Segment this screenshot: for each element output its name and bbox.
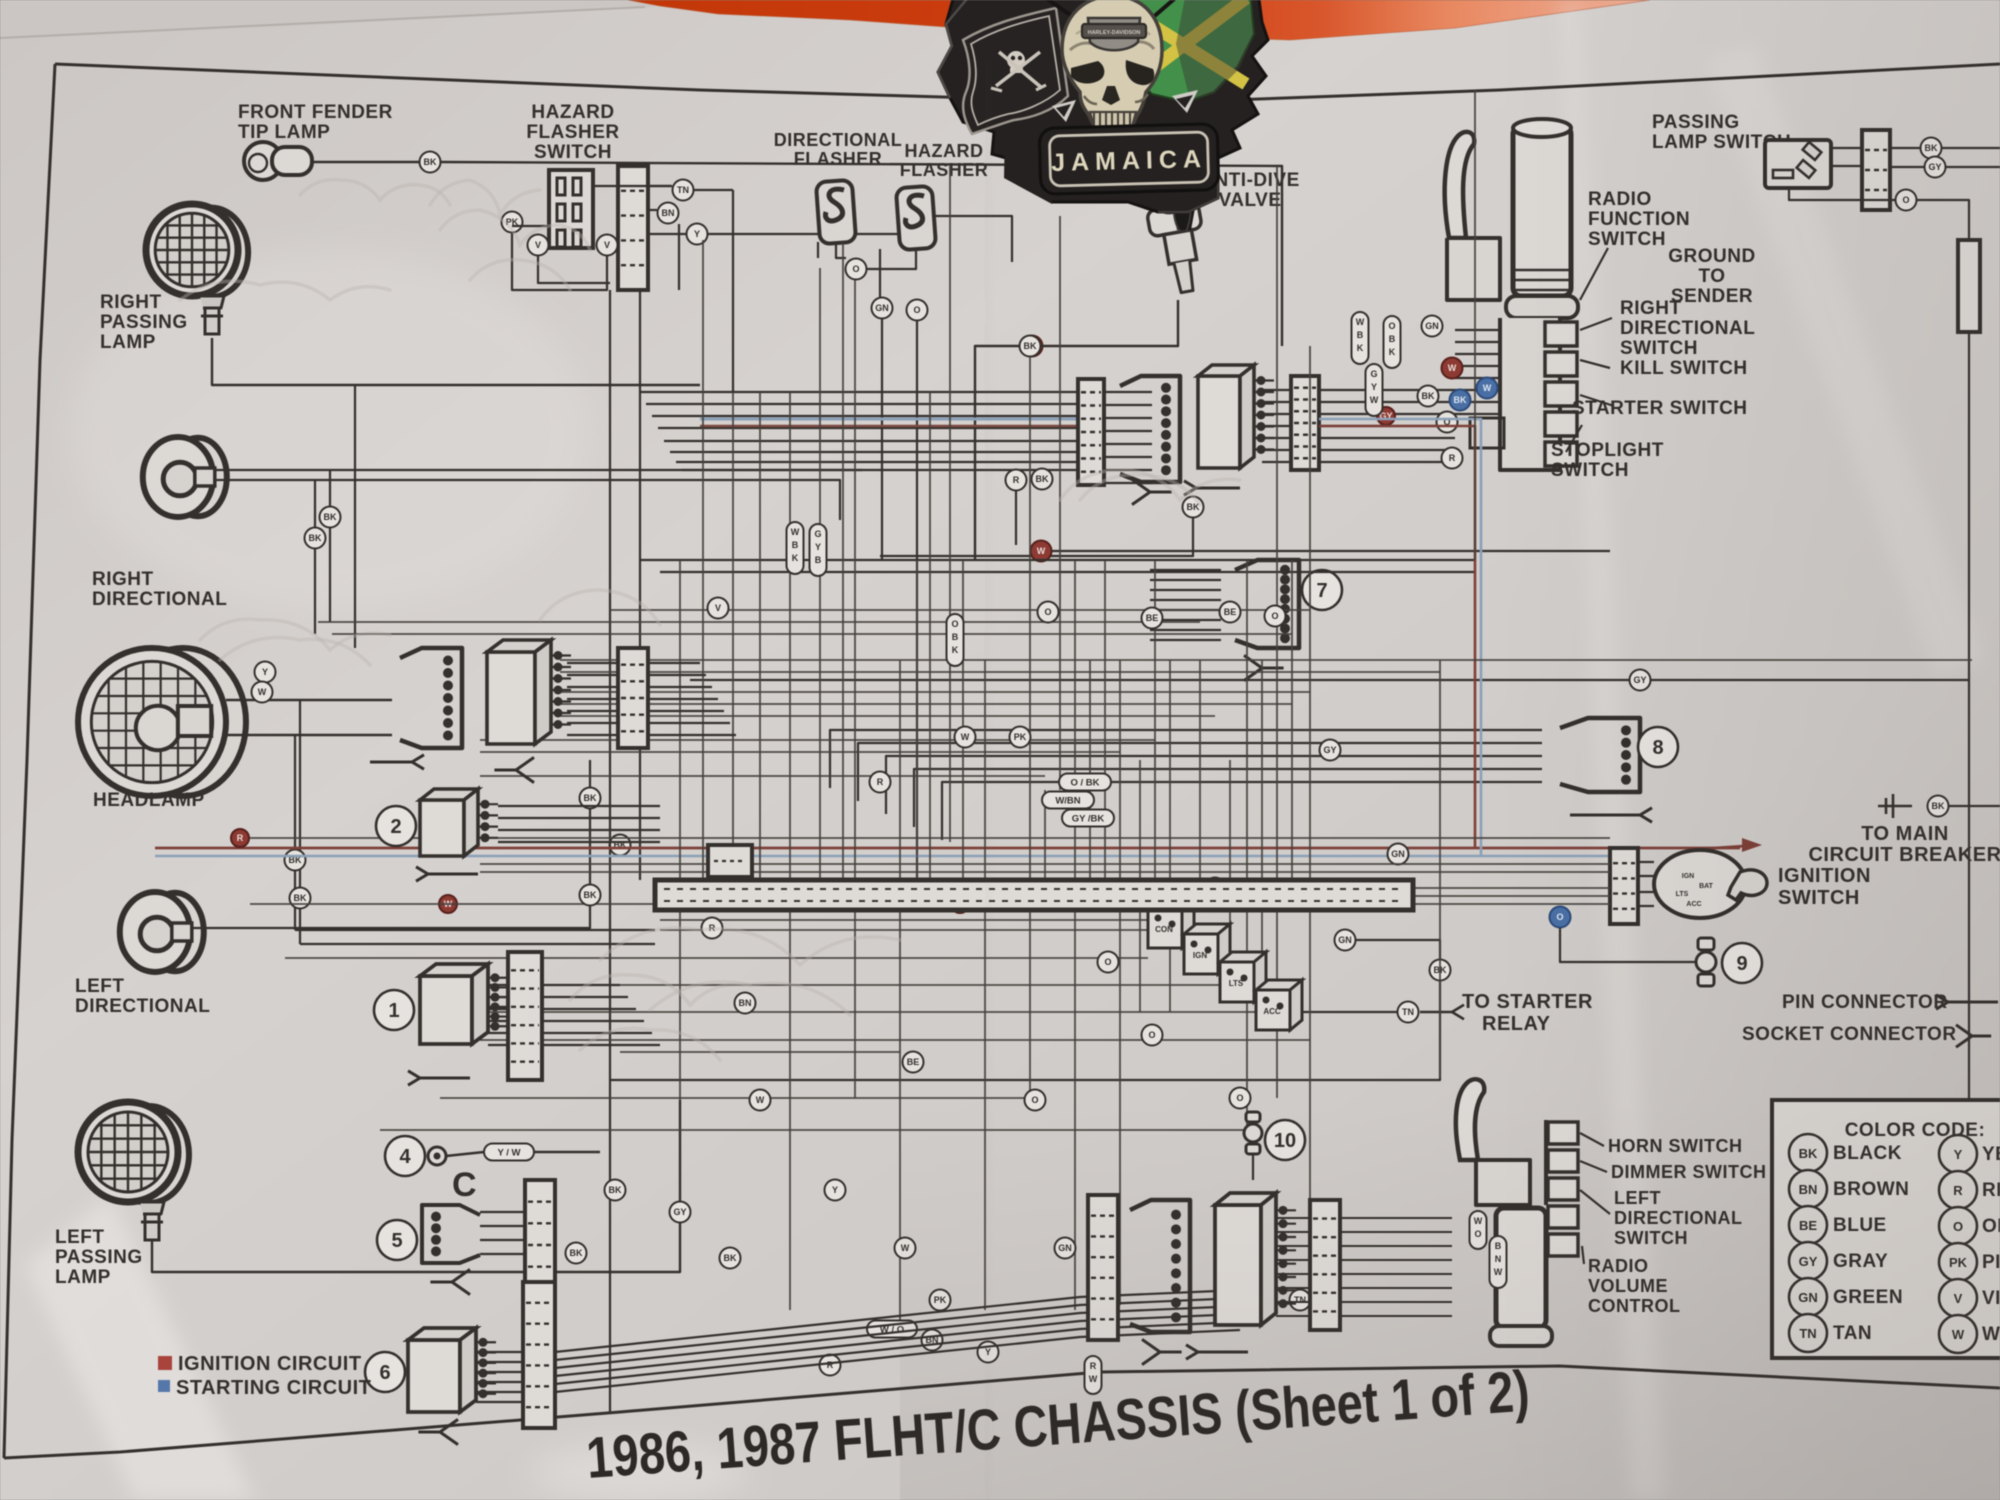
svg-text:TIP LAMP: TIP LAMP [238, 122, 330, 143]
svg-text:GY /BK: GY /BK [1072, 814, 1105, 825]
svg-text:BN: BN [662, 208, 675, 218]
svg-text:VALVE: VALVE [1218, 190, 1281, 211]
svg-text:W/BN: W/BN [1055, 796, 1080, 807]
svg-text:W: W [258, 687, 267, 697]
svg-text:G: G [814, 529, 821, 539]
svg-text:JAMAICA: JAMAICA [1051, 145, 1208, 177]
svg-text:BK: BK [609, 1185, 622, 1195]
svg-text:GY: GY [673, 1207, 686, 1217]
svg-text:DIRECTIONAL: DIRECTIONAL [92, 589, 227, 610]
svg-text:BK: BK [1036, 474, 1049, 484]
svg-text:O: O [913, 305, 920, 315]
svg-text:Y: Y [694, 229, 700, 239]
svg-text:TN: TN [677, 185, 689, 195]
svg-text:SWITCH: SWITCH [534, 142, 612, 163]
svg-text:K: K [792, 553, 799, 563]
svg-text:BE: BE [907, 1057, 920, 1067]
svg-text:O: O [1271, 611, 1278, 621]
svg-text:W: W [1037, 546, 1046, 556]
svg-text:W: W [1356, 317, 1365, 327]
svg-text:LEFT: LEFT [75, 976, 125, 997]
svg-text:B: B [792, 540, 799, 550]
svg-text:B: B [952, 632, 959, 642]
svg-text:LEFT: LEFT [55, 1227, 105, 1248]
svg-text:PASSING: PASSING [55, 1247, 143, 1268]
svg-text:FRONT FENDER: FRONT FENDER [238, 102, 393, 123]
svg-text:W: W [756, 1095, 765, 1105]
svg-text:O: O [852, 264, 859, 274]
svg-text:FLASHER: FLASHER [794, 149, 883, 169]
svg-text:2: 2 [390, 816, 401, 838]
svg-text:GN: GN [1425, 321, 1439, 331]
svg-text:GN: GN [1338, 935, 1352, 945]
svg-text:LAMP: LAMP [100, 332, 156, 353]
svg-text:BK: BK [584, 890, 597, 900]
svg-text:TN: TN [1402, 1007, 1414, 1017]
svg-text:BK: BK [309, 533, 322, 543]
svg-text:4: 4 [399, 1146, 411, 1168]
svg-text:BK: BK [724, 1253, 737, 1263]
svg-text:7: 7 [1316, 580, 1327, 602]
svg-text:R: R [877, 777, 884, 787]
svg-text:STARTING CIRCUIT: STARTING CIRCUIT [176, 1377, 371, 1399]
svg-text:R: R [237, 833, 244, 843]
svg-text:BK: BK [1422, 391, 1435, 401]
svg-text:BK: BK [1454, 395, 1467, 405]
svg-text:RIGHT: RIGHT [100, 292, 162, 313]
svg-text:BE: BE [1146, 613, 1159, 623]
svg-text:C: C [452, 1166, 477, 1204]
svg-text:R: R [1013, 475, 1020, 485]
svg-text:W: W [1448, 363, 1457, 373]
svg-text:DIRECTIONAL: DIRECTIONAL [75, 996, 210, 1017]
svg-text:RIGHT: RIGHT [92, 569, 154, 590]
svg-text:FLASHER: FLASHER [900, 160, 989, 180]
svg-text:V: V [604, 240, 610, 250]
svg-text:O: O [1044, 607, 1051, 617]
svg-text:W: W [961, 732, 970, 742]
svg-text:V: V [535, 240, 541, 250]
svg-text:GN: GN [875, 303, 889, 313]
svg-text:1: 1 [388, 1000, 399, 1022]
svg-text:BK: BK [324, 512, 337, 522]
svg-text:V: V [715, 603, 721, 613]
svg-text:Y: Y [832, 1185, 838, 1195]
svg-text:IGN: IGN [1193, 951, 1207, 960]
svg-text:K: K [1357, 343, 1364, 353]
svg-text:6: 6 [379, 1362, 390, 1384]
svg-text:HEADLAMP: HEADLAMP [93, 790, 205, 811]
svg-text:BK: BK [294, 893, 307, 903]
svg-text:BK: BK [570, 1248, 583, 1258]
svg-text:GN: GN [1391, 849, 1405, 859]
svg-text:BK: BK [584, 793, 597, 803]
svg-text:PASSING: PASSING [100, 312, 188, 333]
svg-text:Y: Y [1371, 382, 1377, 392]
svg-text:O / BK: O / BK [1070, 778, 1099, 789]
svg-text:FLASHER: FLASHER [526, 122, 619, 143]
svg-text:O: O [1388, 321, 1395, 331]
svg-text:BE: BE [1224, 607, 1237, 617]
svg-text:K: K [952, 645, 959, 655]
svg-text:B: B [1389, 334, 1396, 344]
svg-text:Y / W: Y / W [497, 1148, 520, 1159]
svg-text:R: R [1449, 453, 1456, 463]
svg-text:IGNITION CIRCUIT: IGNITION CIRCUIT [178, 1353, 362, 1375]
svg-text:DIRECTIONAL: DIRECTIONAL [774, 130, 903, 150]
svg-text:Y: Y [815, 542, 821, 552]
svg-text:W: W [791, 527, 800, 537]
svg-text:BN: BN [739, 998, 752, 1008]
svg-text:GY: GY [1323, 745, 1336, 755]
svg-text:R: R [827, 1360, 834, 1370]
svg-text:Y: Y [262, 667, 268, 677]
svg-text:G: G [1370, 369, 1377, 379]
svg-text:5: 5 [391, 1230, 402, 1252]
svg-text:W: W [1370, 395, 1379, 405]
svg-text:HARLEY-DAVIDSON: HARLEY-DAVIDSON [1088, 30, 1141, 36]
svg-text:B: B [815, 555, 822, 565]
svg-text:O: O [1104, 957, 1111, 967]
svg-text:O: O [1148, 1030, 1155, 1040]
svg-text:O: O [951, 619, 958, 629]
svg-text:BK: BK [1024, 341, 1037, 351]
svg-text:HAZARD: HAZARD [905, 141, 984, 161]
svg-text:PK: PK [1014, 732, 1027, 742]
svg-text:BK: BK [424, 157, 437, 167]
svg-text:LAMP: LAMP [55, 1267, 111, 1288]
svg-text:K: K [1389, 347, 1396, 357]
svg-text:B: B [1357, 330, 1364, 340]
svg-text:HAZARD: HAZARD [531, 102, 614, 123]
